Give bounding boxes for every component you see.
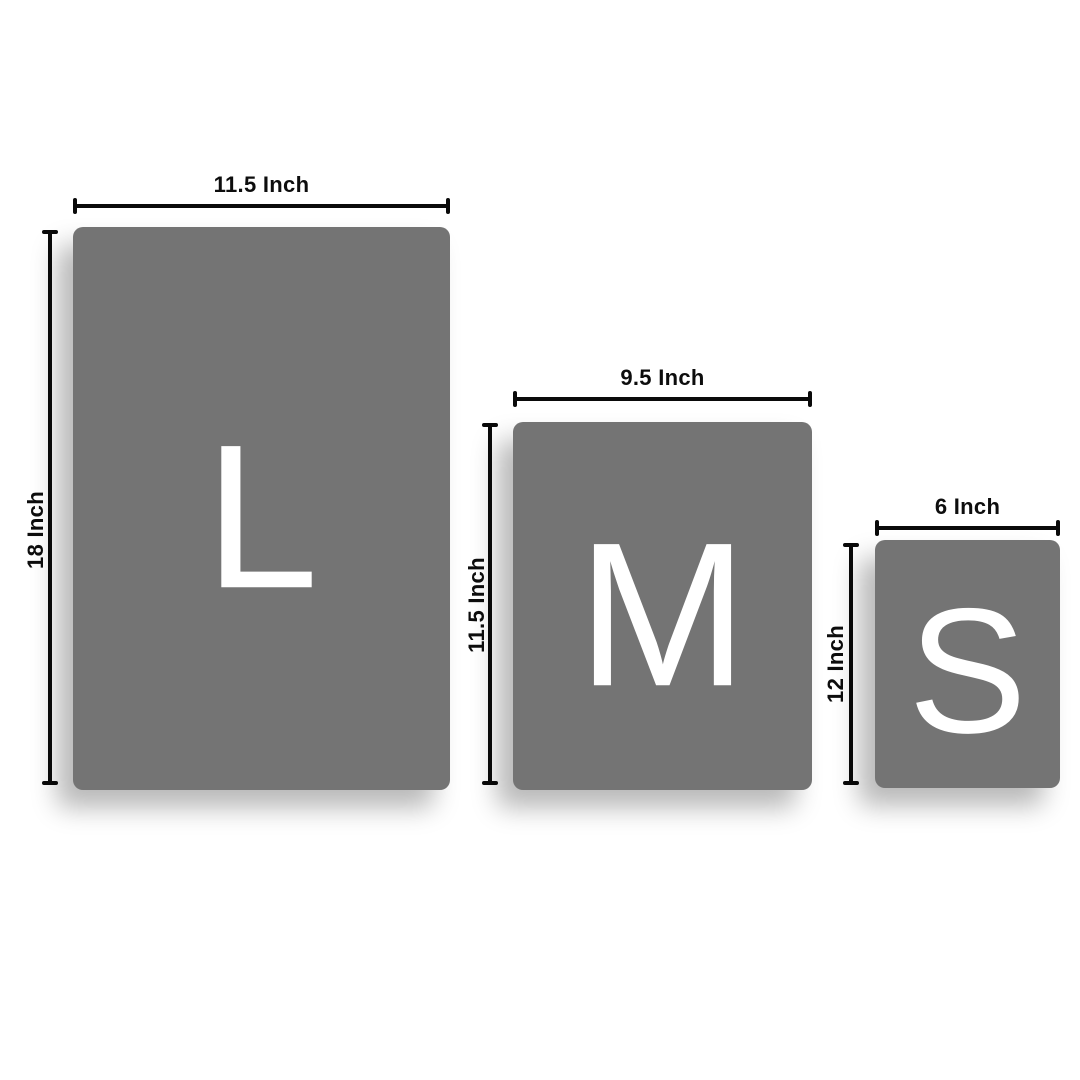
size-letter-medium: M [577,512,748,717]
measure-tick-icon [875,520,879,536]
measure-tick-icon [446,198,450,214]
width-measure-line-large [73,204,450,208]
height-label-small: 12 Inch [823,625,849,703]
measure-tick-icon [1056,520,1060,536]
measure-tick-icon [42,781,58,785]
width-measure-line-medium [513,397,812,401]
height-label-large: 18 Inch [23,491,49,569]
measure-tick-icon [513,391,517,407]
size-chart-canvas: 11.5 Inch 18 Inch L 9.5 Inch 11.5 Inch M… [0,0,1080,1080]
measure-tick-icon [843,543,859,547]
size-box-large: L [73,227,450,790]
size-box-small: S [875,540,1060,788]
size-letter-small: S [908,582,1027,760]
size-box-medium: M [513,422,812,790]
width-label-small: 6 Inch [875,494,1060,520]
measure-tick-icon [482,781,498,785]
measure-tick-icon [42,230,58,234]
height-measure-line-large [48,230,52,785]
height-label-medium: 11.5 Inch [464,557,490,653]
width-label-medium: 9.5 Inch [513,365,812,391]
measure-tick-icon [482,423,498,427]
height-measure-line-medium [488,423,492,785]
measure-tick-icon [808,391,812,407]
measure-tick-icon [73,198,77,214]
width-label-large: 11.5 Inch [73,172,450,198]
measure-tick-icon [843,781,859,785]
height-measure-line-small [849,543,853,785]
width-measure-line-small [875,526,1060,530]
size-letter-large: L [204,414,318,619]
